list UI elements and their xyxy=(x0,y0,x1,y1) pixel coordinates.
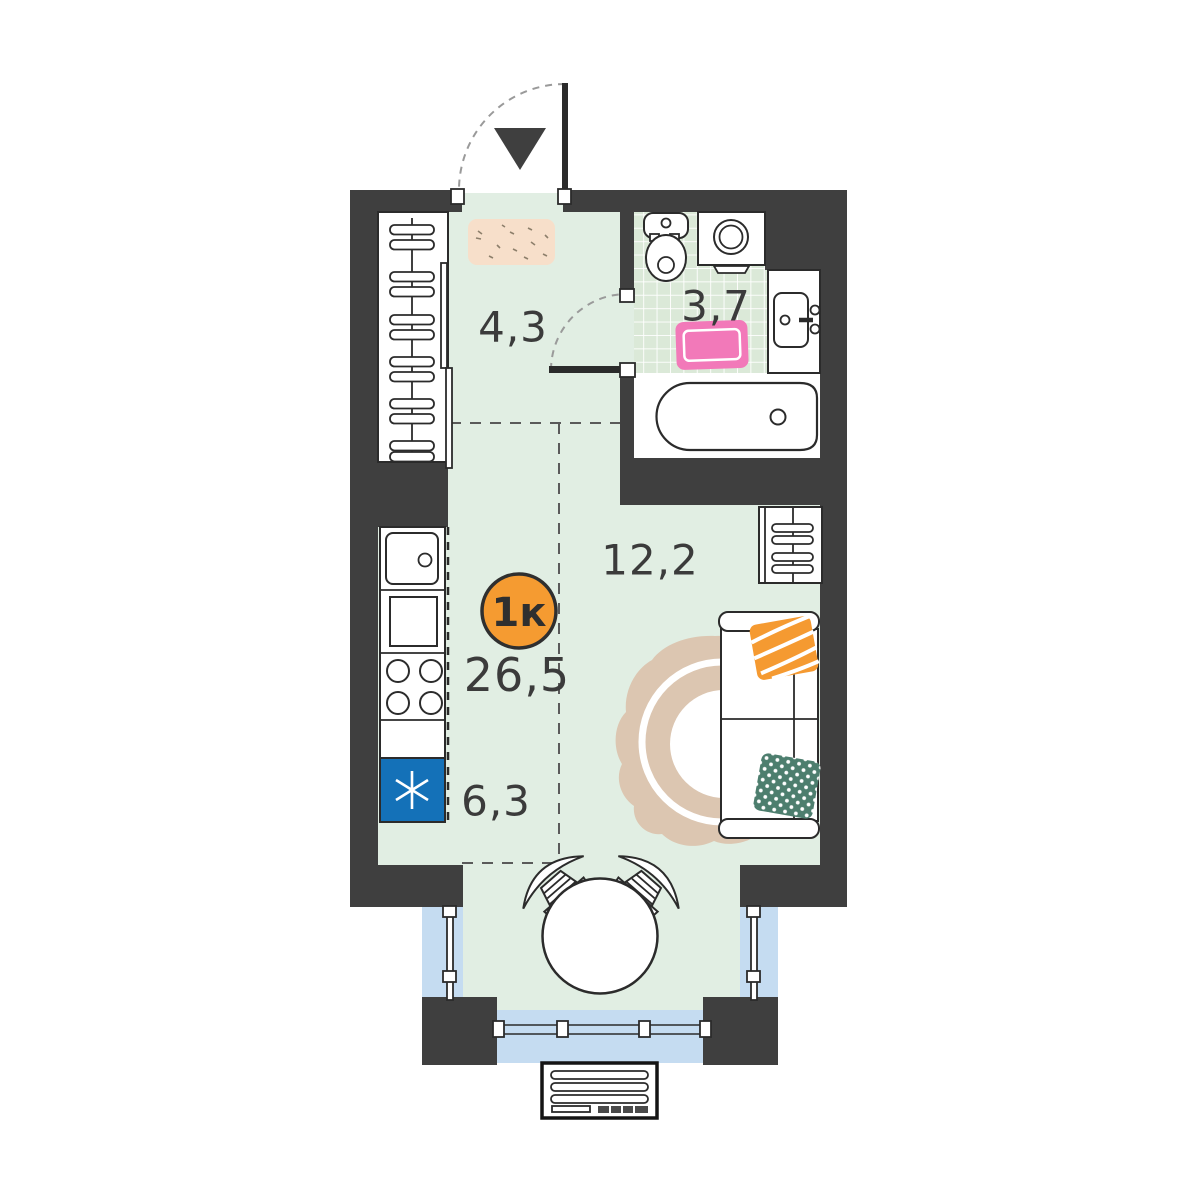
entry-door-jamb xyxy=(451,189,464,204)
wall-bay-bottom-right xyxy=(703,997,778,1065)
window-left-glass xyxy=(422,907,463,1011)
wall-bay-bottom-left xyxy=(422,997,497,1065)
kitchen-sink-drain xyxy=(419,554,432,567)
sofa xyxy=(719,612,822,838)
room-label-kitchen: 6,3 xyxy=(461,777,531,826)
wardrobe-door-panel xyxy=(446,368,452,468)
sofa-armrest xyxy=(719,819,819,838)
faucet-handle xyxy=(811,325,820,334)
pillow-green-shape xyxy=(752,752,821,820)
wall-bathroom-upper xyxy=(620,212,634,297)
window-left-frame xyxy=(447,908,453,1000)
washing-machine-door-inner xyxy=(720,226,743,249)
toilet xyxy=(644,213,688,281)
wall-below-bathtub xyxy=(620,457,847,505)
window-bottom-mullion xyxy=(493,1021,504,1037)
entry-door-jamb xyxy=(558,189,571,204)
radiator xyxy=(542,1063,657,1118)
window-right-mullion xyxy=(747,906,760,917)
window-bottom-mullion xyxy=(557,1021,568,1037)
dresser xyxy=(759,507,822,583)
floor-plan-page: 4,3 3,7 12,2 6,3 26,5 1к xyxy=(0,0,1200,1200)
wall-bathroom-corner xyxy=(765,212,847,270)
bathtub-tub xyxy=(657,383,818,450)
window-bottom-mullion xyxy=(639,1021,650,1037)
wall-right xyxy=(820,190,847,865)
dresser-hanger xyxy=(772,565,813,573)
wall-stub-wardrobe xyxy=(350,462,448,527)
toilet-button xyxy=(662,219,671,228)
faucet-handle xyxy=(811,306,820,315)
window-left-mullion xyxy=(443,971,456,982)
room-label-hallway: 4,3 xyxy=(478,303,548,352)
kitchen-block xyxy=(380,527,448,822)
kitchen-counter xyxy=(390,597,437,646)
window-right-frame xyxy=(751,908,757,1000)
basin-drain xyxy=(781,316,790,325)
dresser-hanger xyxy=(772,553,813,561)
apartment-type-badge: 1к xyxy=(482,574,556,648)
wall-bay-left xyxy=(350,865,463,907)
bathroom-door-jamb xyxy=(620,289,634,302)
bathtub xyxy=(634,373,820,458)
window-left-mullion xyxy=(443,906,456,917)
entry-door-leaf xyxy=(562,83,568,190)
floor-entry xyxy=(462,193,563,213)
window-right-glass xyxy=(740,907,778,1011)
total-area-label: 26,5 xyxy=(464,648,570,702)
wardrobe xyxy=(378,212,452,468)
dining-table xyxy=(543,879,658,994)
room-label-bathroom: 3,7 xyxy=(681,282,751,331)
wall-left xyxy=(350,190,378,865)
dresser-hanger xyxy=(772,524,813,532)
radiator-tray xyxy=(552,1106,590,1112)
washing-machine xyxy=(698,212,765,273)
radiator-slat xyxy=(551,1095,648,1103)
window-right-mullion xyxy=(747,971,760,982)
room-label-living: 12,2 xyxy=(601,536,699,585)
bathtub-drain xyxy=(771,410,786,425)
bathroom-sink xyxy=(768,270,820,373)
toilet-bowl-drain xyxy=(658,257,674,273)
hall-rug xyxy=(468,219,555,265)
badge-label: 1к xyxy=(492,590,547,636)
wardrobe-door-panel xyxy=(441,263,447,368)
wall-bay-right xyxy=(740,865,847,907)
wall-top-right xyxy=(563,190,847,212)
washing-machine-tray xyxy=(714,266,749,273)
dresser-hanger xyxy=(772,536,813,544)
bathroom-door-jamb xyxy=(620,363,635,377)
floor-plan-svg: 4,3 3,7 12,2 6,3 26,5 1к xyxy=(0,0,1200,1200)
pillow-green xyxy=(752,752,821,820)
pillow-orange xyxy=(749,615,821,681)
hall-rug-shape xyxy=(468,219,555,265)
bathroom-door-leaf xyxy=(549,366,627,373)
radiator-slat xyxy=(551,1083,648,1091)
window-bottom-frame xyxy=(498,1025,707,1034)
window-bottom-mullion xyxy=(700,1021,711,1037)
radiator-slat xyxy=(551,1071,648,1079)
